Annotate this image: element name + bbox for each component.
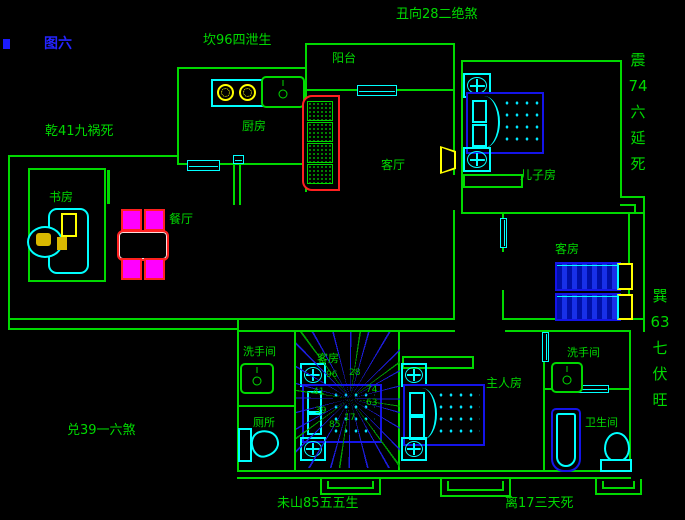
window-kitchen: [187, 160, 220, 171]
room-label-study: 书房: [49, 191, 73, 203]
computer-monitor-icon: [61, 213, 77, 237]
blue-mark: [3, 39, 10, 49]
bed-mattress-dots: [436, 389, 480, 439]
floor-plan-canvas[interactable]: 96 28 74 63 17 85 39 41 图六 坎96四泄生 丑向28二绝…: [0, 0, 685, 520]
wall-stub-a: [233, 163, 235, 205]
window-washright-left: [542, 332, 549, 362]
nightstand: [463, 147, 491, 172]
computer-keyboard-icon: [57, 237, 67, 250]
wall-bottom-outer: [237, 477, 631, 479]
room-label-washroom-left: 洗手间: [243, 346, 276, 357]
wall-stub-b: [239, 163, 241, 205]
label-left-lower: 兑39一六煞: [67, 424, 136, 437]
room-label-toilet: 厕所: [253, 417, 275, 428]
wall-balcony-top: [305, 43, 455, 45]
dining-table: [117, 230, 169, 261]
room-label-washroom-right: 洗手间: [567, 347, 600, 358]
stove: [211, 79, 267, 107]
wall-son-top: [461, 60, 622, 62]
compass-number: 39: [315, 407, 326, 416]
washroom-left-sink: [240, 363, 274, 394]
study-chair-seat: [36, 233, 51, 246]
label-right-lower-char: 伏: [652, 367, 667, 382]
compass-rose: [296, 332, 400, 468]
label-top-left: 坎96四泄生: [203, 34, 272, 47]
room-label-balcony: 阳台: [332, 52, 356, 64]
room-label-dining: 餐厅: [169, 213, 193, 225]
study-door-leaf: [107, 170, 110, 204]
blanket-fold: [484, 96, 500, 148]
compass-number: 85: [329, 421, 340, 430]
label-right-lower-char: 巽: [652, 289, 667, 304]
bed-mattress-dots: [502, 97, 540, 147]
sofa-cushion: [307, 101, 333, 121]
wall-study-top: [28, 168, 106, 170]
bay-window-right: [595, 479, 642, 495]
toilet-bowl: [604, 432, 630, 462]
wall-corner-inner-v: [634, 204, 636, 212]
wall-corner-outer-h: [620, 196, 645, 198]
kitchen-sink: [261, 76, 305, 108]
sofa-cushion: [307, 122, 333, 142]
guest-bed-pillow: [617, 263, 633, 290]
wall-study-right: [104, 168, 106, 282]
wall-son-bottom-guest-top: [461, 212, 645, 214]
wall-corridor-top-left: [8, 318, 455, 320]
compass-number: 74: [366, 386, 377, 395]
blanket-fold: [422, 388, 437, 440]
label-bottom-left: 未山85五五生: [277, 497, 359, 510]
label-right-upper-char: 死: [630, 157, 645, 172]
toilet-bowl: [248, 427, 282, 460]
burner-icon: [217, 84, 234, 101]
room-label-living: 客厅: [381, 159, 405, 171]
bay-window-center: [440, 479, 511, 497]
compass-number: 28: [349, 369, 360, 378]
label-right-upper-char: 延: [630, 131, 645, 146]
wall-living-right-lower: [453, 210, 455, 318]
son-bed: [466, 92, 544, 154]
guest-bed: [555, 262, 621, 291]
label-bottom-right: 离17三天死: [505, 497, 574, 510]
bathtub: [551, 408, 581, 472]
dining-chair: [121, 209, 142, 231]
window-balcony-living: [357, 85, 397, 96]
compass-number: 17: [344, 414, 355, 423]
compass-number: 41: [313, 388, 324, 397]
room-label-kitchen: 厨房: [242, 120, 266, 132]
label-right-upper-char: 震: [630, 53, 645, 68]
sofa-cushion: [307, 143, 333, 163]
wall-kitchen-top: [177, 67, 307, 69]
label-right-upper-char: 74: [628, 79, 647, 94]
wall-kitchen-left: [177, 67, 179, 165]
son-shelf: [463, 174, 523, 188]
label-right-lower-char: 63: [650, 315, 669, 330]
dining-chair: [121, 258, 142, 280]
label-right-upper-char: 六: [630, 105, 645, 120]
wall-wash-toilet-divider: [237, 405, 296, 407]
guest-bed-pillow: [617, 294, 633, 320]
wall-son-right-outer: [620, 60, 622, 198]
room-label-guest-center: 客房: [317, 353, 339, 364]
wall-guest-left-lower: [502, 290, 504, 320]
label-top-center: 丑向28二绝煞: [396, 8, 478, 21]
wall-left-outer: [8, 155, 10, 330]
wall-right-outer: [643, 196, 645, 332]
label-left-upper: 乾41九祸死: [45, 125, 114, 138]
room-label-bathroom: 卫生间: [585, 417, 618, 428]
compass-number: 96: [326, 371, 337, 380]
window-stub: [233, 155, 244, 164]
room-label-son: 儿子房: [520, 169, 556, 181]
wall-rooms-top-b: [505, 330, 631, 332]
wall-topleft-outer: [8, 155, 179, 157]
label-right-upper: 震 74 六 延 死: [626, 53, 650, 172]
nightstand: [401, 437, 427, 461]
washroom-right-sink: [551, 362, 583, 393]
wall-corridor-bottom-left: [8, 328, 237, 330]
wall-study-left: [28, 168, 30, 282]
label-right-lower: 巽 63 七 伏 旺: [648, 289, 672, 408]
figure-label: 图六: [44, 37, 72, 51]
burner-icon: [239, 84, 256, 101]
toilet-base: [600, 459, 632, 472]
wall-study-bottom: [28, 280, 106, 282]
label-right-lower-char: 七: [652, 341, 667, 356]
window-guest-left: [500, 218, 507, 248]
label-right-lower-char: 旺: [652, 393, 667, 408]
compass-number: 63: [366, 399, 377, 408]
room-label-master: 主人房: [486, 377, 522, 389]
guest-bed: [555, 293, 621, 321]
sofa-cushion: [307, 164, 333, 184]
dining-chair: [144, 209, 165, 231]
toilet-tank: [238, 428, 252, 462]
bay-window-left: [320, 479, 381, 495]
sofa: [302, 95, 340, 191]
dining-chair: [144, 258, 165, 280]
room-label-guest-right: 客房: [555, 243, 579, 255]
